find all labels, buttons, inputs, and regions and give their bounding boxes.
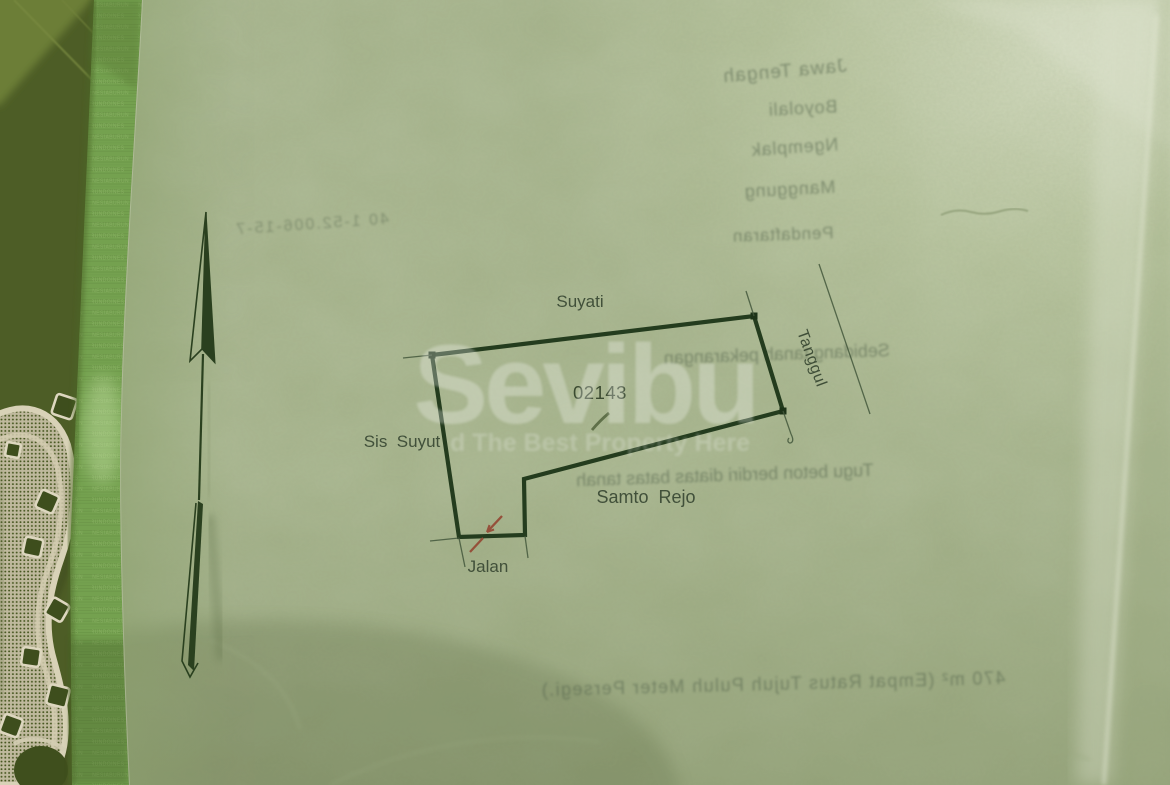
svg-text:Samto Rejo: Samto Rejo — [596, 487, 695, 507]
svg-text:Boyolali: Boyolali — [767, 96, 837, 120]
svg-text:Jalan: Jalan — [468, 557, 509, 576]
svg-text:Pendaftaran: Pendaftaran — [732, 223, 834, 246]
svg-text:d The Best Property Here: d The Best Property Here — [450, 429, 750, 457]
svg-text:Suyati: Suyati — [556, 292, 603, 311]
